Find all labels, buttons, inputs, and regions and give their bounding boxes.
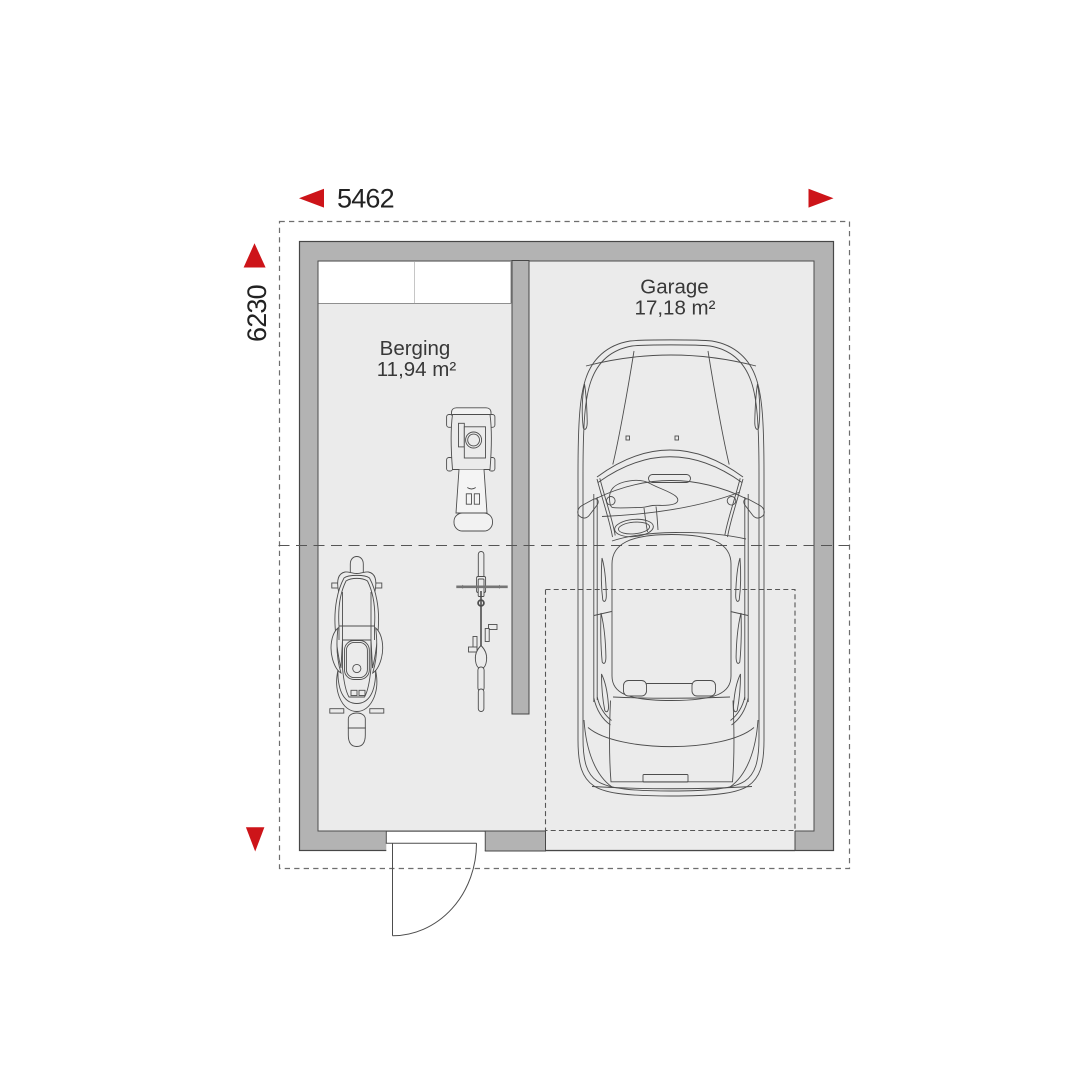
svg-text:5462: 5462 <box>337 184 394 214</box>
svg-text:11,94 m²: 11,94 m² <box>377 358 457 381</box>
svg-text:Garage: Garage <box>640 276 708 299</box>
svg-text:17,18 m²: 17,18 m² <box>635 297 716 320</box>
svg-text:6230: 6230 <box>242 285 272 342</box>
svg-text:Berging: Berging <box>380 337 451 360</box>
